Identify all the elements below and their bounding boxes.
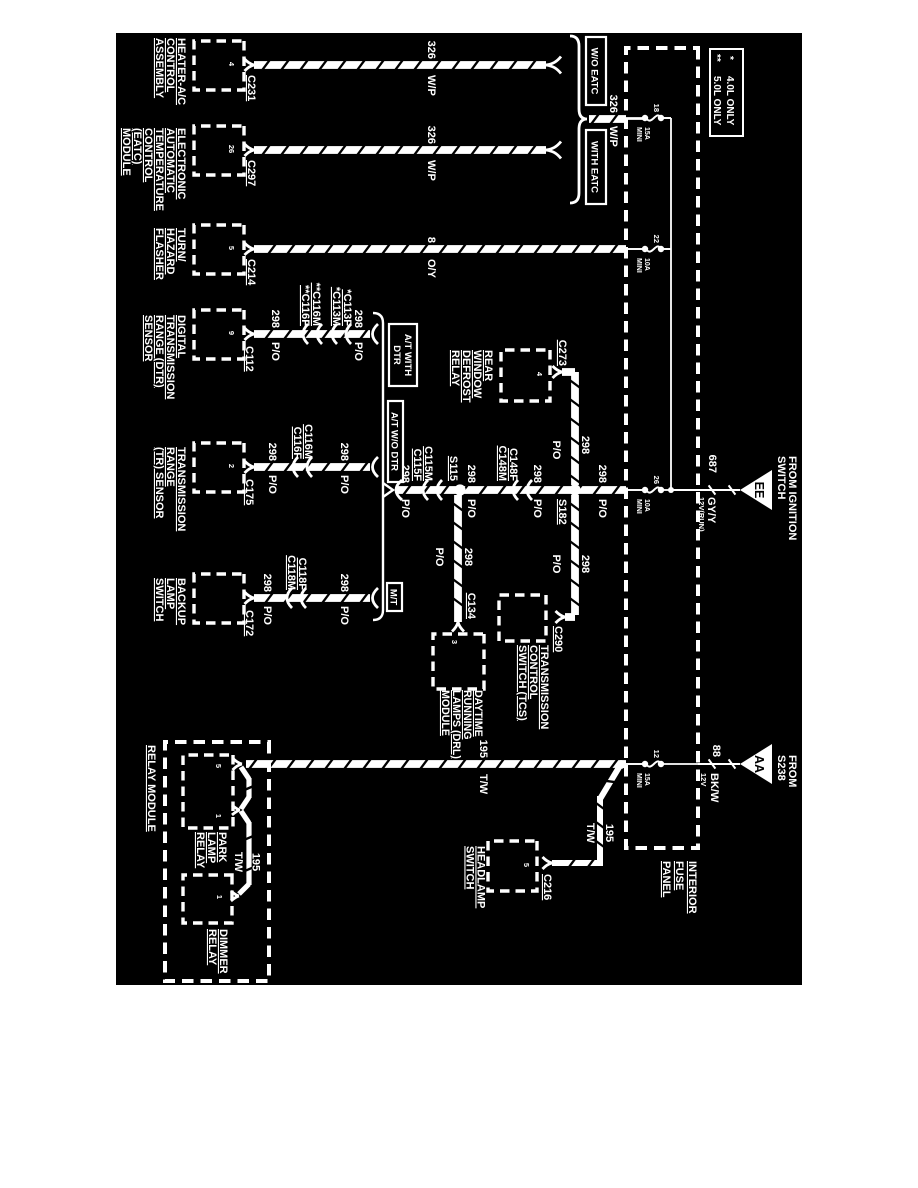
svg-text:TRANSMISSION: TRANSMISSION <box>175 447 187 531</box>
svg-text:LAMP: LAMP <box>164 578 176 609</box>
svg-text:298: 298 <box>338 443 350 461</box>
svg-text:BACKUP: BACKUP <box>175 578 187 625</box>
svg-text:**: ** <box>711 54 722 62</box>
svg-text:SWITCH (TCS): SWITCH (TCS) <box>516 645 528 721</box>
svg-text:W/P: W/P <box>425 160 437 181</box>
svg-text:298: 298 <box>531 465 543 483</box>
svg-text:C116M: C116M <box>302 424 314 459</box>
svg-text:C134: C134 <box>465 593 477 620</box>
svg-text:RELAY MODULE: RELAY MODULE <box>145 745 157 832</box>
svg-text:5.0L ONLY: 5.0L ONLY <box>711 76 722 126</box>
svg-text:C116F: C116F <box>291 427 303 460</box>
svg-text:298: 298 <box>462 548 474 566</box>
svg-text:P/O: P/O <box>352 342 364 361</box>
svg-text:AUTOMATIC: AUTOMATIC <box>164 128 176 193</box>
svg-text:C290: C290 <box>552 626 564 652</box>
svg-text:S115: S115 <box>447 456 459 481</box>
svg-text:CONTROL: CONTROL <box>527 645 539 700</box>
svg-text:RELAY: RELAY <box>194 832 206 869</box>
svg-text:AA: AA <box>752 755 766 773</box>
svg-text:298: 298 <box>338 574 350 592</box>
svg-text:195: 195 <box>250 853 262 871</box>
svg-text:SWITCH: SWITCH <box>464 846 476 889</box>
svg-text:WITH EATC: WITH EATC <box>589 141 600 193</box>
svg-text:C231: C231 <box>245 75 257 101</box>
svg-text:C148F: C148F <box>507 448 519 481</box>
svg-text:A/T WITH: A/T WITH <box>402 334 413 376</box>
svg-text:P/O: P/O <box>550 555 562 574</box>
svg-text:P/O: P/O <box>338 475 350 494</box>
svg-text:PARK: PARK <box>216 832 228 862</box>
svg-text:5: 5 <box>522 863 531 867</box>
svg-text:195: 195 <box>477 740 489 758</box>
svg-text:SWITCH: SWITCH <box>153 578 165 621</box>
svg-text:RELAY: RELAY <box>449 350 461 387</box>
svg-text:8: 8 <box>425 237 437 243</box>
svg-text:C273: C273 <box>556 340 568 366</box>
svg-text:18: 18 <box>652 104 661 112</box>
svg-text:298: 298 <box>261 574 273 592</box>
svg-text:A/T W/O DTR: A/T W/O DTR <box>389 412 400 471</box>
svg-text:T/W: T/W <box>584 823 596 844</box>
svg-text:3: 3 <box>450 640 459 644</box>
svg-text:HEATER-A/C: HEATER-A/C <box>175 38 187 105</box>
svg-text:GY/Y: GY/Y <box>705 497 717 524</box>
svg-text:REAR: REAR <box>482 350 494 381</box>
svg-text:10A: 10A <box>643 499 650 512</box>
svg-text:9: 9 <box>227 331 236 335</box>
svg-text:SWITCH: SWITCH <box>775 456 787 499</box>
svg-text:C216: C216 <box>541 874 553 900</box>
svg-text:FLASHER: FLASHER <box>153 228 165 280</box>
svg-text:5: 5 <box>227 246 236 250</box>
svg-text:4: 4 <box>227 62 236 67</box>
svg-text:CONTROL: CONTROL <box>142 128 154 183</box>
svg-text:DAYTIME: DAYTIME <box>472 690 484 737</box>
svg-text:CONTROL: CONTROL <box>164 38 176 93</box>
svg-text:FUSE: FUSE <box>673 861 685 890</box>
svg-text:P/O: P/O <box>269 342 281 361</box>
svg-text:DEFROST: DEFROST <box>460 350 472 403</box>
svg-text:TEMPERATURE: TEMPERATURE <box>153 128 165 211</box>
svg-text:326: 326 <box>425 126 437 144</box>
svg-text:*C113M: *C113M <box>330 287 342 326</box>
svg-text:ASSEMBLY: ASSEMBLY <box>153 38 165 99</box>
svg-text:298: 298 <box>352 310 364 328</box>
svg-text:P/O: P/O <box>266 475 278 494</box>
svg-text:W/P: W/P <box>425 75 437 96</box>
svg-text:TRANSMISSION: TRANSMISSION <box>538 645 550 729</box>
svg-text:**C116M: **C116M <box>310 283 322 326</box>
svg-text:298: 298 <box>465 465 477 483</box>
svg-text:INTERIOR: INTERIOR <box>686 861 698 914</box>
svg-text:W/O EATC: W/O EATC <box>589 48 600 95</box>
svg-text:P/O: P/O <box>433 548 445 567</box>
svg-text:2: 2 <box>227 464 236 468</box>
svg-text:P/O: P/O <box>261 606 273 625</box>
svg-text:C214: C214 <box>245 259 257 286</box>
svg-text:298: 298 <box>579 555 591 573</box>
svg-text:*C113F: *C113F <box>341 289 353 326</box>
svg-text:TRANSMISSION: TRANSMISSION <box>164 315 176 399</box>
svg-text:P/O: P/O <box>550 441 562 460</box>
svg-text:C118F: C118F <box>296 558 308 591</box>
svg-text:RUNNING: RUNNING <box>461 690 473 739</box>
svg-text:15A: 15A <box>643 127 650 140</box>
svg-text:S238: S238 <box>775 755 787 781</box>
svg-text:4.0L ONLY: 4.0L ONLY <box>724 76 735 126</box>
svg-text:5: 5 <box>214 764 223 768</box>
svg-text:EE: EE <box>752 482 766 499</box>
svg-text:C118M: C118M <box>285 555 297 590</box>
svg-text:MINI: MINI <box>635 773 642 788</box>
svg-text:P/O: P/O <box>465 499 477 518</box>
svg-text:P/O: P/O <box>338 606 350 625</box>
svg-text:326: 326 <box>425 41 437 59</box>
svg-text:MODULE: MODULE <box>439 690 451 736</box>
svg-text:MINI: MINI <box>635 127 642 142</box>
svg-text:MINI: MINI <box>635 499 642 514</box>
svg-text:DIMMER: DIMMER <box>217 929 229 974</box>
svg-text:T/W: T/W <box>477 774 489 795</box>
svg-text:1: 1 <box>215 895 224 899</box>
svg-text:LAMPS (DRL): LAMPS (DRL) <box>450 690 462 759</box>
svg-text:P/O: P/O <box>531 499 543 518</box>
svg-text:DIGITAL: DIGITAL <box>175 315 187 358</box>
svg-text:O/Y: O/Y <box>425 259 437 279</box>
svg-text:RELAY: RELAY <box>206 929 218 966</box>
svg-text:C115F: C115F <box>411 449 423 482</box>
svg-text:12: 12 <box>652 750 661 758</box>
svg-text:FROM: FROM <box>786 755 798 787</box>
svg-text:22: 22 <box>652 235 661 243</box>
svg-text:88: 88 <box>710 745 722 757</box>
svg-text:P/O: P/O <box>596 499 608 518</box>
svg-text:RANGE (DTR): RANGE (DTR) <box>153 315 165 388</box>
svg-text:FROM IGNITION: FROM IGNITION <box>786 456 798 540</box>
svg-text:298: 298 <box>269 310 281 328</box>
svg-text:HAZARD: HAZARD <box>164 228 176 274</box>
svg-text:S182: S182 <box>556 499 568 525</box>
svg-text:26: 26 <box>652 476 661 484</box>
svg-text:687: 687 <box>706 455 718 473</box>
svg-text:LAMP: LAMP <box>205 832 217 863</box>
svg-text:C148M: C148M <box>496 446 508 481</box>
svg-text:HEADLAMP: HEADLAMP <box>475 846 487 908</box>
svg-text:PANEL: PANEL <box>660 861 672 898</box>
svg-text:*: * <box>724 56 735 60</box>
svg-text:326: 326 <box>607 95 619 113</box>
svg-text:MINI: MINI <box>635 258 642 273</box>
svg-text:WINDOW: WINDOW <box>471 350 483 399</box>
svg-text:298: 298 <box>266 443 278 461</box>
svg-text:T/W: T/W <box>232 852 244 873</box>
svg-text:298: 298 <box>596 465 608 483</box>
svg-text:M/T: M/T <box>388 589 399 606</box>
svg-text:(TR) SENSOR: (TR) SENSOR <box>153 447 165 519</box>
svg-text:C115M: C115M <box>422 446 434 481</box>
svg-text:1: 1 <box>214 814 223 818</box>
svg-text:15A: 15A <box>643 773 650 786</box>
svg-text:4: 4 <box>535 372 544 377</box>
svg-text:BK/W: BK/W <box>708 773 720 803</box>
svg-text:W/P: W/P <box>607 126 619 147</box>
svg-text:ELECTRONIC: ELECTRONIC <box>175 128 187 200</box>
svg-text:26: 26 <box>227 145 236 153</box>
svg-text:TURN/: TURN/ <box>175 228 187 262</box>
svg-text:P/O: P/O <box>399 499 411 518</box>
svg-text:12V: 12V <box>699 773 708 786</box>
svg-text:298: 298 <box>579 436 591 454</box>
svg-text:MODULE: MODULE <box>120 128 132 176</box>
svg-text:**C116F: **C116F <box>299 285 311 326</box>
svg-text:SENSOR: SENSOR <box>142 315 154 362</box>
svg-text:195: 195 <box>603 824 615 842</box>
svg-text:DTR: DTR <box>391 345 402 365</box>
svg-text:10A: 10A <box>643 258 650 271</box>
svg-text:(EATC): (EATC) <box>131 128 143 165</box>
svg-text:RANGE: RANGE <box>164 447 176 487</box>
svg-text:C297: C297 <box>245 160 257 186</box>
